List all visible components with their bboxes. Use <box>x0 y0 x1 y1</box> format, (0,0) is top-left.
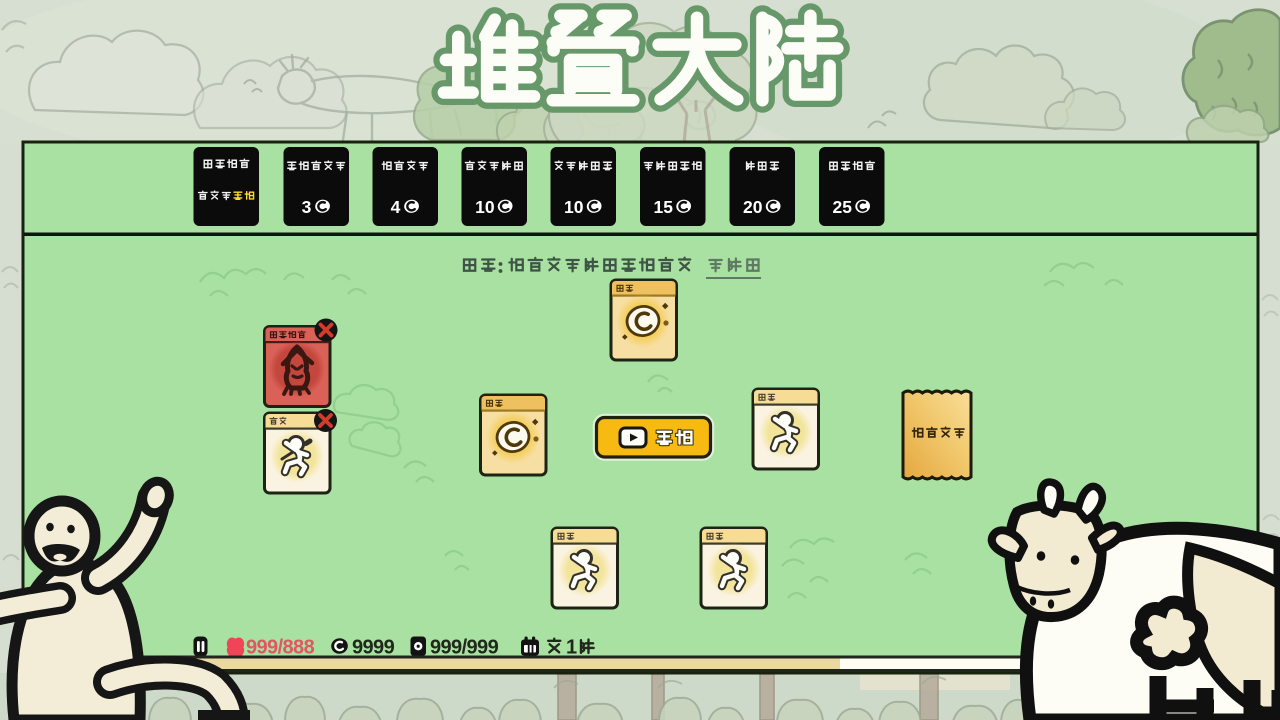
svg-text:9999: 9999 <box>352 637 395 659</box>
svg-text:1: 1 <box>566 637 577 659</box>
svg-text:15: 15 <box>654 197 674 217</box>
svg-text:3: 3 <box>302 197 312 217</box>
svg-text:25: 25 <box>833 197 853 217</box>
svg-text:999/999: 999/999 <box>430 637 499 659</box>
svg-text:10: 10 <box>475 197 495 217</box>
svg-text:10: 10 <box>564 197 584 217</box>
svg-text:20: 20 <box>743 197 763 217</box>
svg-text:999/888: 999/888 <box>246 637 315 659</box>
svg-text:4: 4 <box>391 197 401 217</box>
